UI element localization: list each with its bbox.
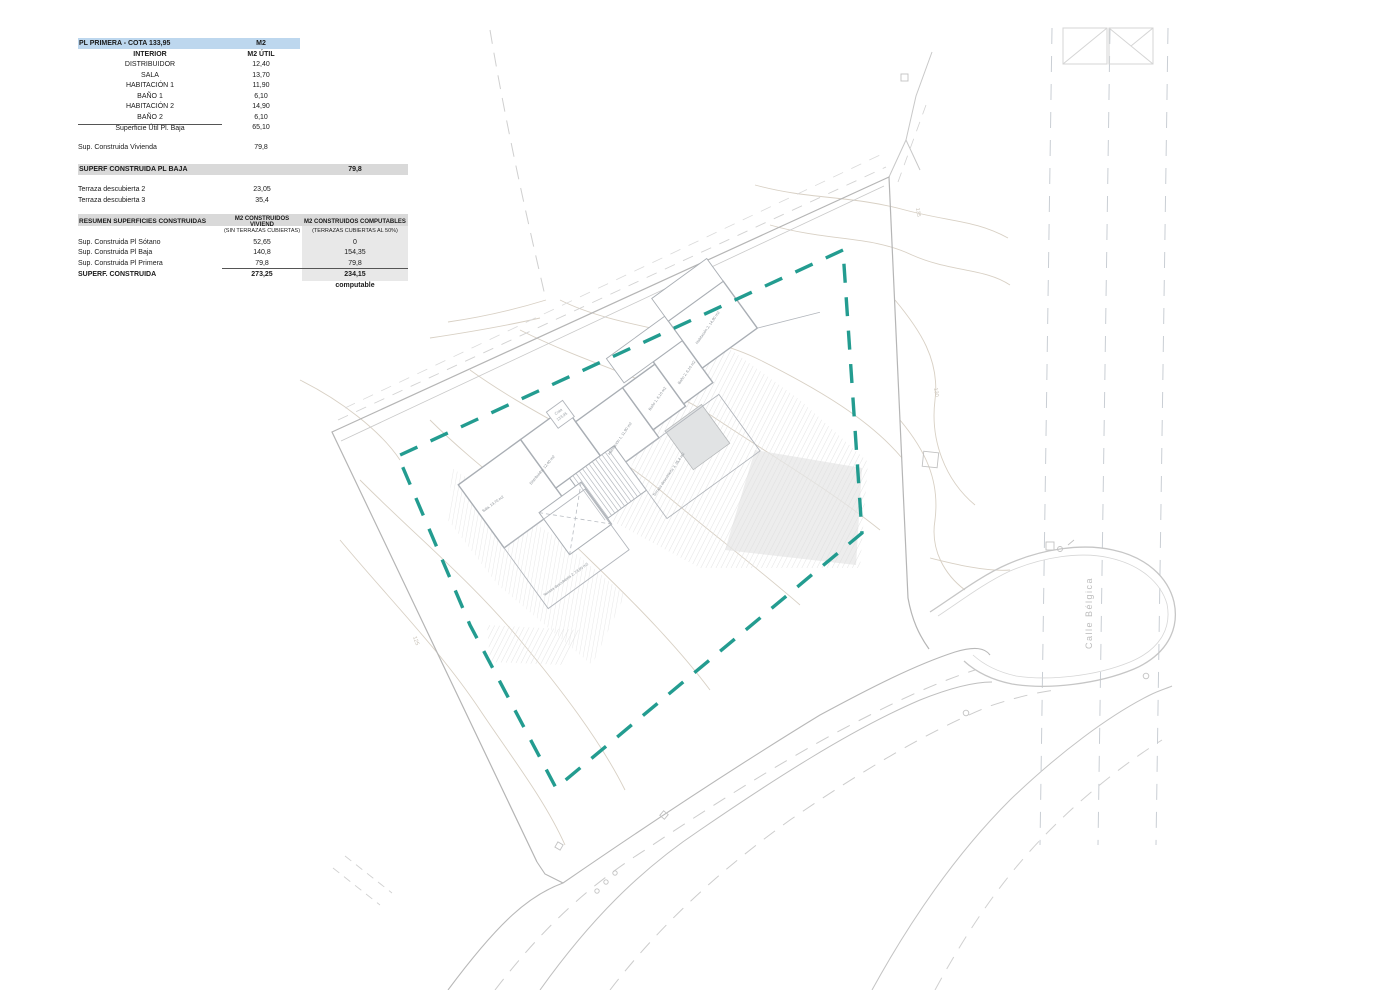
table-row: Terraza descubierta 3 35,4: [78, 195, 408, 206]
plan-sheet: Calle Bélgica: [0, 0, 1400, 990]
table-row: Sup. Construida Pl Sótano 52,65 0: [78, 237, 408, 248]
table-row: SALA 13,70: [78, 70, 300, 81]
table1-total-row: Sup. Construida Vivienda 79,8: [78, 142, 300, 153]
table-row: HABITACIÓN 2 14,90: [78, 102, 300, 113]
cul-de-sac: Calle Bélgica: [930, 547, 1175, 686]
table1-subheader: INTERIOR M2 ÚTIL: [78, 49, 300, 60]
street-label: Calle Bélgica: [1084, 577, 1094, 649]
table3-footnote-row: computable: [78, 280, 408, 291]
table1-subtotal-row: Superficie Útil Pl. Baja 65,10: [78, 123, 300, 134]
svg-text:135: 135: [914, 207, 921, 217]
table3-footnote: computable: [302, 282, 408, 289]
table2-title: SUPERF CONSTRUIDA PL BAJA: [78, 164, 302, 175]
road-curves: [448, 648, 1172, 990]
table-row: Terraza descubierta 2 23,05: [78, 184, 408, 195]
svg-text:125: 125: [411, 636, 420, 647]
table2-header: SUPERF CONSTRUIDA PL BAJA 79,8: [78, 164, 408, 175]
table1-unit: M2: [222, 38, 300, 49]
table3-title: RESUMEN SUPERFICIES CONSTRUIDAS: [78, 217, 222, 228]
footprint-squares: [1063, 28, 1153, 64]
table1-header: PL PRIMERA - COTA 133,95 M2: [78, 38, 300, 49]
table1-title: PL PRIMERA - COTA 133,95: [78, 38, 222, 49]
table-row: Sup. Construida Pl Primera 79,8 79,8: [78, 258, 408, 269]
table2-total-value: 79,8: [302, 164, 408, 175]
table-row: DISTRIBUIDOR 12,40: [78, 60, 300, 71]
table-resumen: RESUMEN SUPERFICIES CONSTRUIDAS M2 CONST…: [78, 214, 408, 291]
svg-text:130: 130: [932, 387, 940, 397]
table3-header: RESUMEN SUPERFICIES CONSTRUIDAS M2 CONST…: [78, 214, 408, 226]
table-row: BAÑO 1 6,10: [78, 91, 300, 102]
table-row: HABITACIÓN 1 11,90: [78, 81, 300, 92]
table-row: Sup. Construida Pl Baja 140,8 154,35: [78, 248, 408, 259]
table3-subheader: (SIN TERRAZAS CUBIERTAS) (TERRAZAS CUBIE…: [78, 226, 408, 237]
table-row: BAÑO 2 6,10: [78, 112, 300, 123]
table3-total-row: SUPERF. CONSTRUIDA 273,25 234,15: [78, 269, 408, 281]
table-pl-primera: PL PRIMERA - COTA 133,95 M2 INTERIOR M2 …: [78, 38, 300, 153]
table-superf-pl-baja: SUPERF CONSTRUIDA PL BAJA 79,8 Terraza d…: [78, 164, 408, 206]
